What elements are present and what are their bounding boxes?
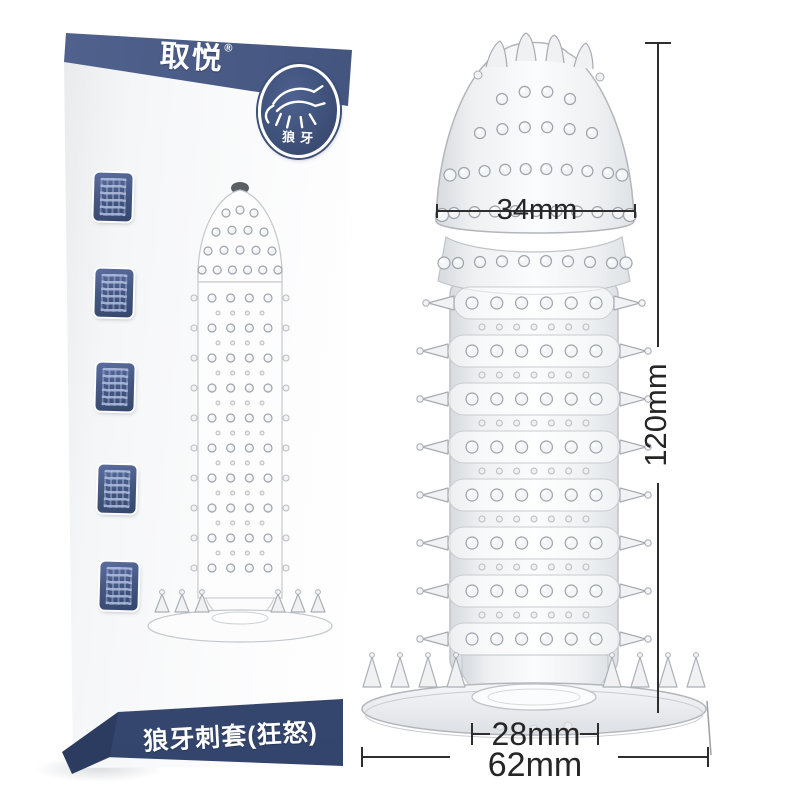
seal-stamp [99,562,138,611]
box-product-print-image [140,178,345,663]
seal-stamp [97,465,136,514]
badge-label: 狼牙 [259,125,336,148]
dimension-total-length: 120mm [640,340,676,490]
seal-stamp-glyphs [104,470,131,509]
dimension-base-width: 62mm [480,748,590,782]
brand-logo-text: 取悦 [159,40,225,77]
seal-stamp-glyphs [100,178,127,217]
registered-trademark-mark: ® [224,42,233,54]
seal-stamp [95,363,134,412]
seal-stamp [93,173,132,222]
seal-stamp-glyphs [106,567,133,606]
brand-logo: 取悦® [159,31,281,76]
dimension-head-width: 34mm [494,196,580,225]
seal-stamp-glyphs [101,274,128,313]
seal-stamp-glyphs [102,368,129,407]
product-photo-page: 取悦® 狼牙 狼牙刺套(狂怒) [0,0,800,800]
seal-stamp [94,269,133,318]
